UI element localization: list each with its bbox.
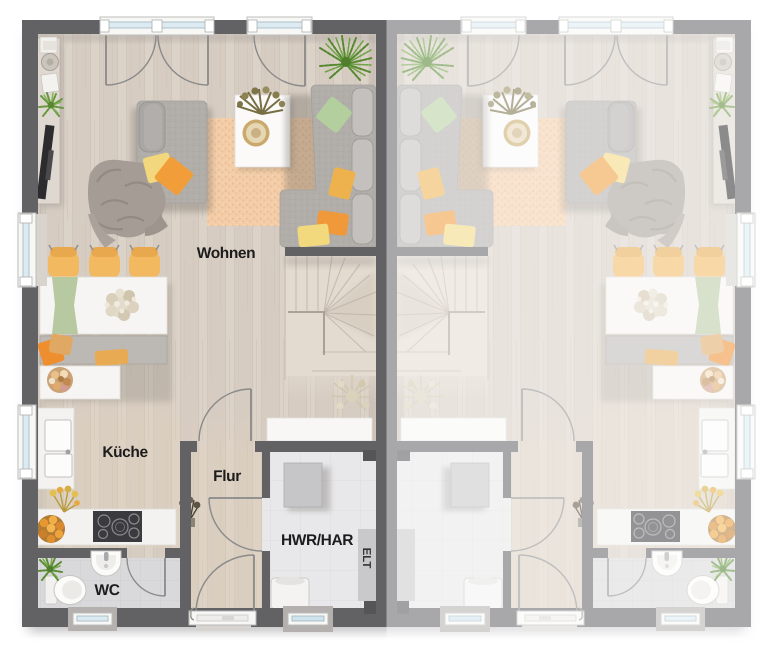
- svg-text:HWR/HAR: HWR/HAR: [281, 532, 353, 549]
- svg-text:Wohnen: Wohnen: [197, 245, 255, 262]
- svg-text:Küche: Küche: [102, 444, 148, 461]
- svg-text:WC: WC: [94, 582, 119, 599]
- svg-text:Flur: Flur: [213, 468, 241, 485]
- svg-text:ELT: ELT: [360, 548, 372, 569]
